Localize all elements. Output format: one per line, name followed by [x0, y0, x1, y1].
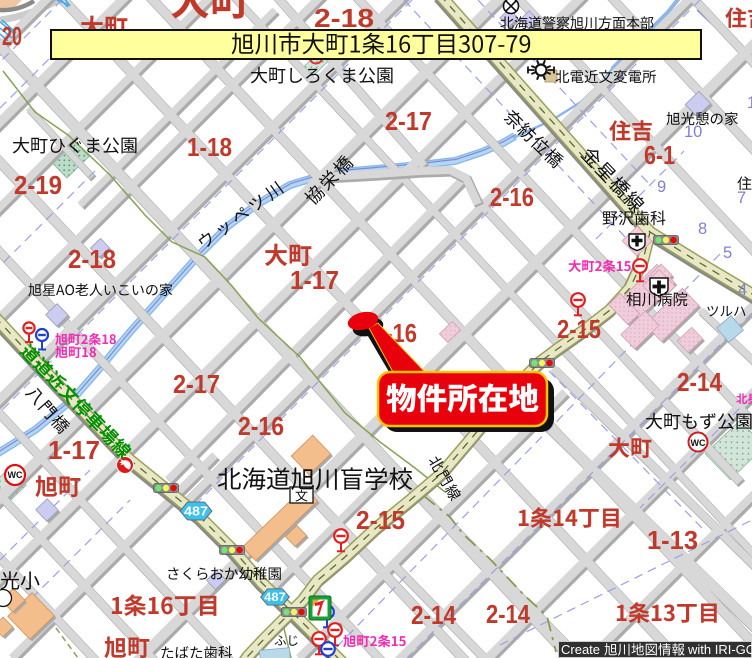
- svg-text:Create: Create: [561, 642, 600, 657]
- svg-text:2-17: 2-17: [385, 106, 432, 136]
- svg-text:2-14: 2-14: [411, 600, 456, 630]
- svg-text:2-15: 2-15: [356, 505, 405, 535]
- svg-text:487: 487: [264, 591, 286, 604]
- svg-text:5: 5: [723, 244, 732, 262]
- svg-text:2-16: 2-16: [238, 411, 284, 441]
- svg-text:20: 20: [2, 21, 22, 51]
- svg-text:2-14: 2-14: [677, 367, 722, 397]
- svg-text:2-14: 2-14: [486, 599, 530, 629]
- svg-text:8: 8: [698, 220, 707, 238]
- svg-text:WC: WC: [8, 470, 23, 480]
- svg-text:with IRI-GO: with IRI-GO: [687, 642, 752, 657]
- svg-text:10: 10: [684, 123, 702, 141]
- svg-text:1-13: 1-13: [647, 525, 698, 555]
- svg-text:2-17: 2-17: [173, 369, 220, 399]
- svg-text:487: 487: [184, 504, 208, 519]
- svg-text:2-19: 2-19: [14, 170, 62, 200]
- svg-text:7: 7: [737, 189, 746, 207]
- svg-text:9: 9: [657, 178, 666, 196]
- svg-text:1: 1: [747, 94, 752, 112]
- svg-text:2-18: 2-18: [68, 244, 116, 274]
- svg-text:1-18: 1-18: [187, 132, 232, 162]
- svg-text:6-1: 6-1: [644, 140, 675, 170]
- svg-text:1-17: 1-17: [290, 265, 339, 295]
- svg-text:2-16: 2-16: [490, 182, 534, 212]
- svg-text:4: 4: [738, 281, 747, 299]
- svg-text:WC: WC: [691, 438, 706, 448]
- svg-text:1-17: 1-17: [48, 435, 100, 465]
- svg-text:2-15: 2-15: [557, 314, 601, 344]
- svg-text:2-18: 2-18: [314, 3, 374, 33]
